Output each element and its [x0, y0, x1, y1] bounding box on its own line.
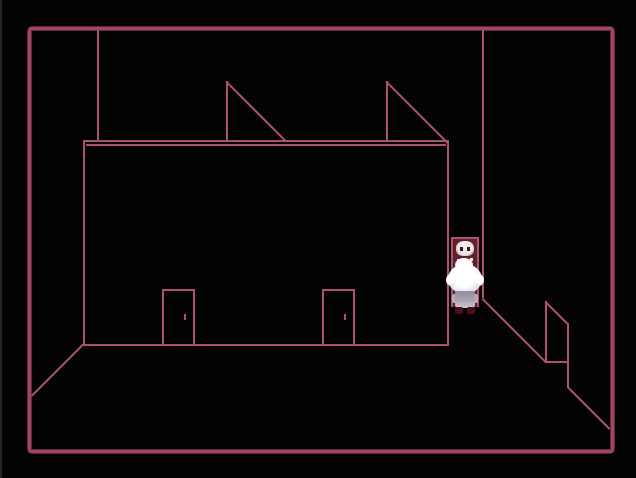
facade-door-left-knob: [184, 314, 186, 320]
facade-wall: [83, 140, 449, 346]
back-corner-line-left: [97, 30, 99, 141]
character-hair-side-tuft: [446, 274, 456, 286]
game-viewport[interactable]: [0, 0, 636, 478]
skull-eye-right: [467, 247, 470, 251]
skull-eye-left: [460, 247, 463, 251]
skull-face: [456, 241, 474, 256]
facade-door-left: [162, 289, 195, 346]
character-shoe-left: [455, 307, 463, 314]
facade-door-right-knob: [344, 314, 346, 320]
screen-edge-strip: [0, 0, 2, 478]
white-haired-character: [446, 258, 484, 318]
side-wall-door-right-edge: [567, 323, 569, 387]
roof-bracket-right-post: [386, 81, 388, 142]
character-shoe-right: [467, 307, 475, 314]
side-wall-door-left-edge: [545, 301, 547, 363]
facade-wall-inner-top-line: [86, 144, 446, 146]
character-dress: [455, 291, 475, 308]
character-hair-side-tuft: [474, 274, 484, 286]
side-wall-door-bottom-edge: [545, 361, 569, 363]
facade-door-right: [322, 289, 355, 346]
roof-bracket-left-post: [226, 81, 228, 142]
